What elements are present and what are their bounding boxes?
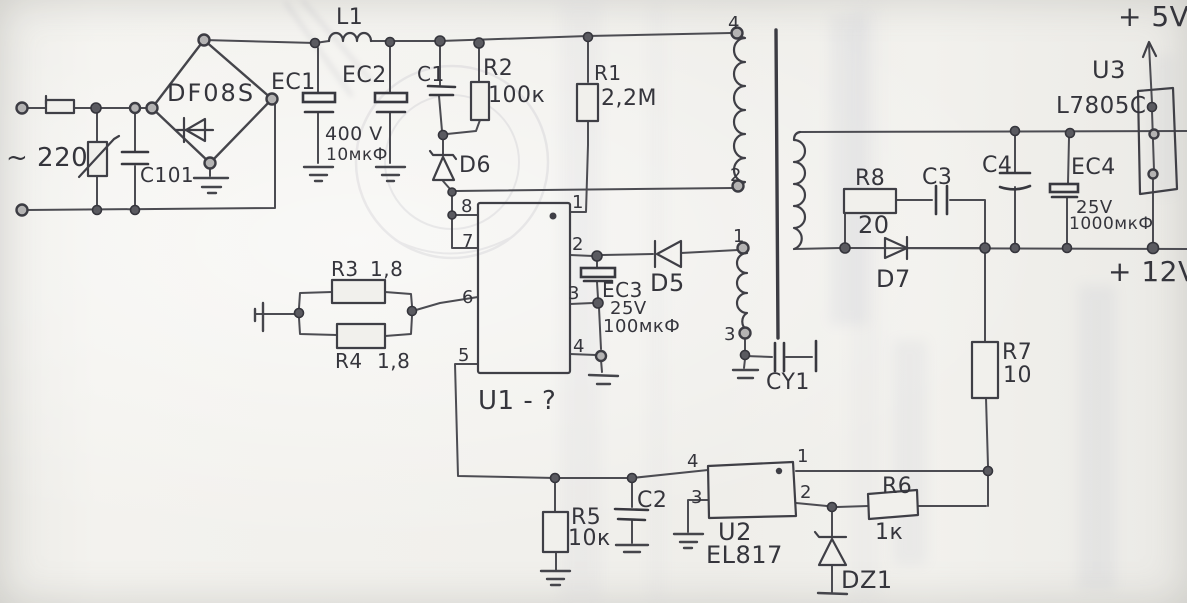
xfmr-pin1-label: 1 <box>733 226 745 247</box>
bridge-label: DF08S <box>167 79 255 107</box>
ground-symbol <box>818 593 847 594</box>
input-terminal <box>17 103 28 114</box>
r6: R6 1к <box>868 474 918 545</box>
r7-value: 10 <box>1003 363 1032 388</box>
bulk-capacitance-label: 10мкФ <box>326 145 388 165</box>
r3-label: R3 <box>331 257 359 281</box>
schematic-drawing: ~ 220 C101 DF08S EC1 EC2 400 V 10мкФ <box>0 0 1187 603</box>
ground-symbol <box>304 167 333 181</box>
c101-label: C101 <box>140 163 194 187</box>
bridge-rectifier-df08s: DF08S <box>147 35 278 169</box>
r1-value: 2,2M <box>601 86 657 111</box>
rail-12v-label: + 12V <box>1108 255 1187 288</box>
u1-pin5-label: 5 <box>458 345 470 366</box>
ghost-print-smudge <box>1078 285 1116 590</box>
u1-pin8-label: 8 <box>461 196 473 217</box>
transformer: 4 2 1 3 <box>724 13 805 345</box>
r6-value: 1к <box>875 520 903 545</box>
ground-symbol <box>194 178 228 193</box>
u2-part-label: EL817 <box>706 541 783 569</box>
secondary-winding-icon <box>794 132 805 249</box>
l1-label: L1 <box>336 5 363 30</box>
u2-pin1-label: 1 <box>797 446 809 467</box>
u2-optocoupler: U2 EL817 4 3 1 2 <box>687 446 812 569</box>
ac-input: ~ 220 <box>6 103 88 216</box>
r2-value: 100к <box>488 83 545 108</box>
r1-label: R1 <box>594 61 622 85</box>
c2-label: C2 <box>637 488 667 513</box>
dz1-label: DZ1 <box>841 566 893 594</box>
u1-pin7-label: 7 <box>462 231 474 252</box>
rail-5v-label: + 5V <box>1118 0 1187 33</box>
ec3-capacitance: 100мкФ <box>603 316 680 337</box>
ec1: EC1 <box>271 70 335 112</box>
u2-pin2-label: 2 <box>800 482 812 503</box>
c4: C4 <box>982 153 1030 189</box>
d5-label: D5 <box>650 269 685 297</box>
core-icon <box>776 30 778 338</box>
c2: C2 <box>615 488 667 520</box>
bulk-cap-value: 400 V 10мкФ <box>325 123 388 165</box>
c1: C1 <box>417 62 455 95</box>
u1-controller-ic: U1 - ? 8 7 6 5 1 2 3 4 <box>458 192 585 416</box>
diode-triangle-icon <box>433 157 454 180</box>
fuse <box>46 96 74 113</box>
u1-pin1-label: 1 <box>572 192 584 213</box>
r5: R5 10к <box>543 505 611 552</box>
ground-symbol <box>541 571 570 585</box>
xfmr-pin3-label: 3 <box>724 324 736 345</box>
ec4: EC4 25V 1000мкФ <box>1050 155 1154 234</box>
bulk-voltage-label: 400 V <box>325 123 383 145</box>
u3-label: U3 <box>1092 56 1126 84</box>
r8-label: R8 <box>855 166 885 191</box>
r4: R4 1,8 <box>335 324 410 373</box>
l1-inductor: L1 <box>329 5 371 41</box>
ground-symbol <box>616 545 648 552</box>
u1-label: U1 - ? <box>478 386 556 416</box>
ground-symbol-left <box>255 303 263 331</box>
ground-symbol <box>376 167 405 181</box>
u1-pin6-label: 6 <box>462 287 474 308</box>
r6-label: R6 <box>882 474 912 499</box>
r8: R8 20 <box>844 166 896 239</box>
r4-label: R4 <box>335 349 363 373</box>
paper-artifacts <box>285 0 1176 603</box>
xfmr-pin2-label: 2 <box>730 165 742 186</box>
r7: R7 10 <box>972 340 1032 398</box>
u2-pin4-label: 4 <box>687 451 699 472</box>
cy1-label: CY1 <box>766 370 810 395</box>
r7-label: R7 <box>1002 340 1032 365</box>
c3: C3 <box>922 165 952 214</box>
d6-label: D6 <box>459 153 491 178</box>
ec1-label: EC1 <box>271 70 316 95</box>
pin1-marker-dot <box>776 468 782 474</box>
ground-symbol <box>589 375 618 384</box>
ec4-capacitance: 1000мкФ <box>1069 214 1154 234</box>
schematic-page: ~ 220 C101 DF08S EC1 EC2 400 V 10мкФ <box>0 0 1187 603</box>
c4-label: C4 <box>982 153 1012 178</box>
diode-triangle-icon <box>819 539 846 565</box>
c101: C101 <box>122 152 194 187</box>
d5-diode: D5 <box>650 241 685 297</box>
r8-value: 20 <box>858 211 890 239</box>
u3-part-label: L7805C <box>1056 93 1146 119</box>
d6-zener: D6 <box>430 151 491 180</box>
cy1: CY1 <box>766 341 816 395</box>
u1-pin2-label: 2 <box>572 234 584 255</box>
ground-symbol <box>733 370 758 378</box>
xfmr-pin4-label: 4 <box>728 13 740 34</box>
r3-value: 1,8 <box>370 257 403 281</box>
zener-cathode-bar <box>815 532 846 537</box>
wires <box>27 33 1187 592</box>
input-terminal <box>17 205 28 216</box>
r4-value: 1,8 <box>377 349 410 373</box>
primary-winding-icon <box>734 36 745 185</box>
ac-voltage-label: ~ 220 <box>6 143 88 173</box>
r3: R3 1,8 <box>331 257 403 303</box>
c3-label: C3 <box>922 165 952 190</box>
ec4-label: EC4 <box>1071 155 1116 180</box>
inductor-coil-icon <box>329 33 371 41</box>
ground-symbol <box>674 534 703 548</box>
r2-label: R2 <box>483 56 513 81</box>
pin1-marker-dot <box>550 213 557 220</box>
ec2-label: EC2 <box>342 63 387 88</box>
diode-triangle-icon <box>657 241 681 267</box>
u1-pin3-label: 3 <box>568 283 580 304</box>
aux-winding-icon <box>737 251 747 331</box>
u1-pin4-label: 4 <box>573 336 585 357</box>
ec2: EC2 <box>342 63 407 112</box>
d7-label: D7 <box>876 265 911 293</box>
u2-pin3-label: 3 <box>691 487 703 508</box>
c1-label: C1 <box>417 62 445 86</box>
r5-value: 10к <box>568 526 611 551</box>
r2: R2 100к <box>471 56 545 120</box>
d7-diode: D7 <box>876 237 911 293</box>
